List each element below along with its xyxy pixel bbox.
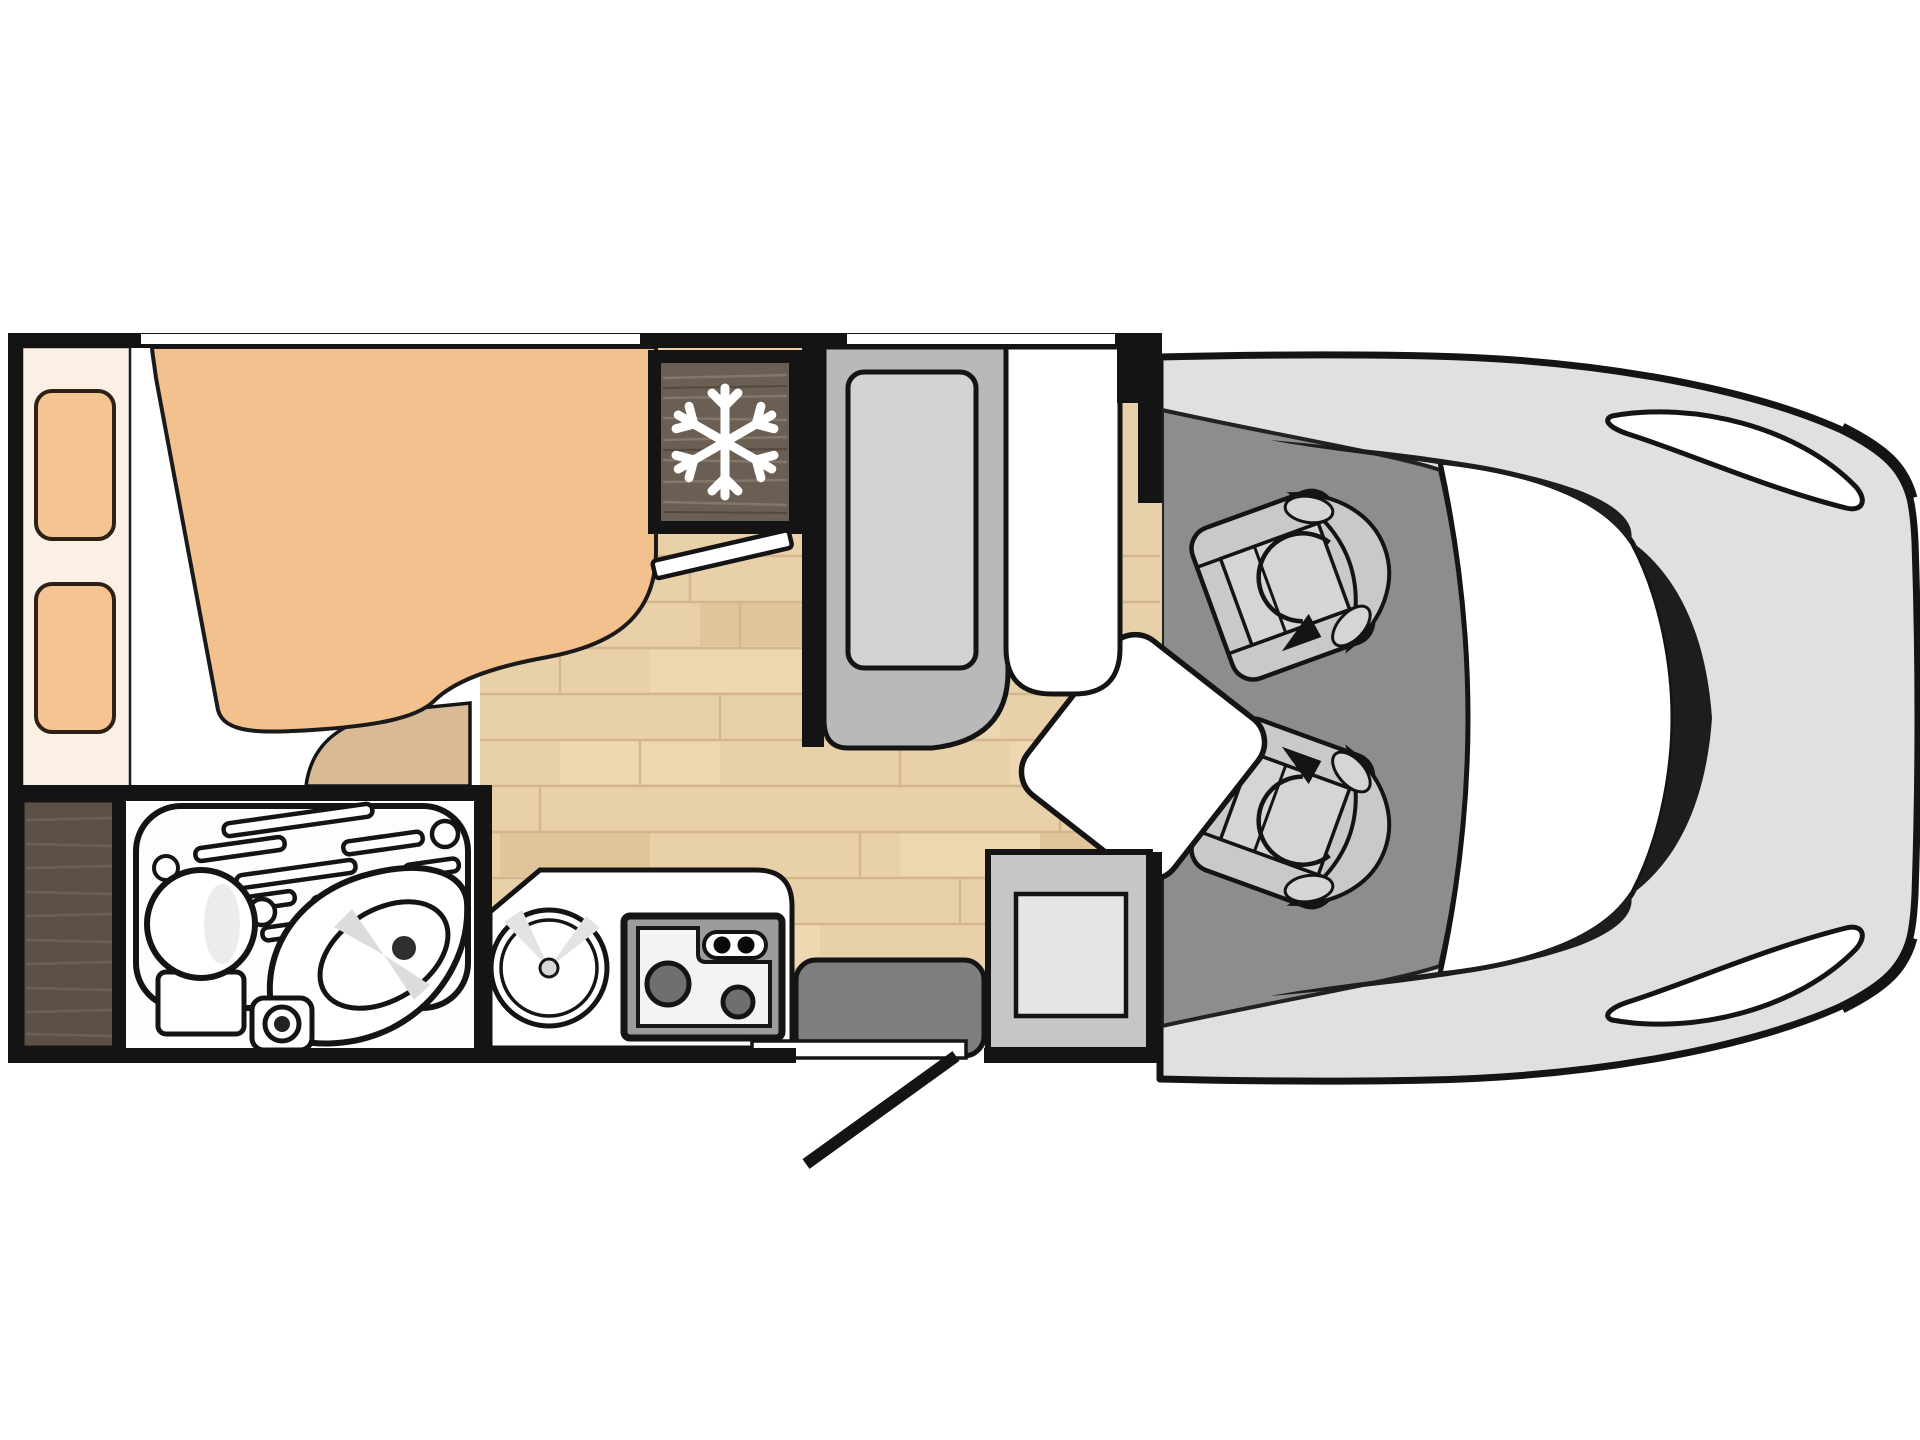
wall-cab-right (1146, 852, 1162, 1063)
wall-bottom-left (8, 1048, 796, 1063)
dinette-bench (802, 347, 1120, 748)
windows (141, 334, 1115, 344)
toilet (147, 856, 255, 1034)
pillow (36, 391, 114, 539)
two-burner-hob (624, 916, 782, 1038)
burner-small (723, 987, 753, 1017)
white-seat-cushion (1006, 347, 1120, 694)
washroom (126, 801, 474, 1050)
window-bedroom (141, 334, 640, 344)
wardrobe-cabinet (22, 800, 118, 1048)
window-dinette (847, 334, 1115, 344)
round-sink (491, 910, 607, 1026)
motorhome-floorplan-canvas (0, 0, 1920, 1440)
wall-bottom-right (984, 1048, 1162, 1063)
wall-washroom-left (112, 801, 126, 1048)
bench-back-wall (802, 347, 824, 747)
floorplan-svg (0, 0, 1920, 1440)
wall-bulkhead-corner (1117, 333, 1162, 403)
faucet-unit (252, 998, 312, 1050)
wall-bulkhead (1138, 403, 1162, 503)
pillow (36, 584, 114, 732)
vehicle-front (1160, 355, 1918, 1081)
entry-door-swing (806, 1056, 956, 1164)
wall-washroom-right (474, 785, 492, 1063)
kitchen (490, 870, 792, 1048)
backrest-cushion (848, 372, 976, 668)
wall-rear (8, 333, 23, 1063)
hob-control-knobs (704, 932, 766, 958)
refrigerator (648, 350, 802, 534)
sideboard-cabinet (988, 852, 1150, 1050)
burner-large (647, 963, 689, 1005)
wall-washroom-top (8, 785, 492, 801)
